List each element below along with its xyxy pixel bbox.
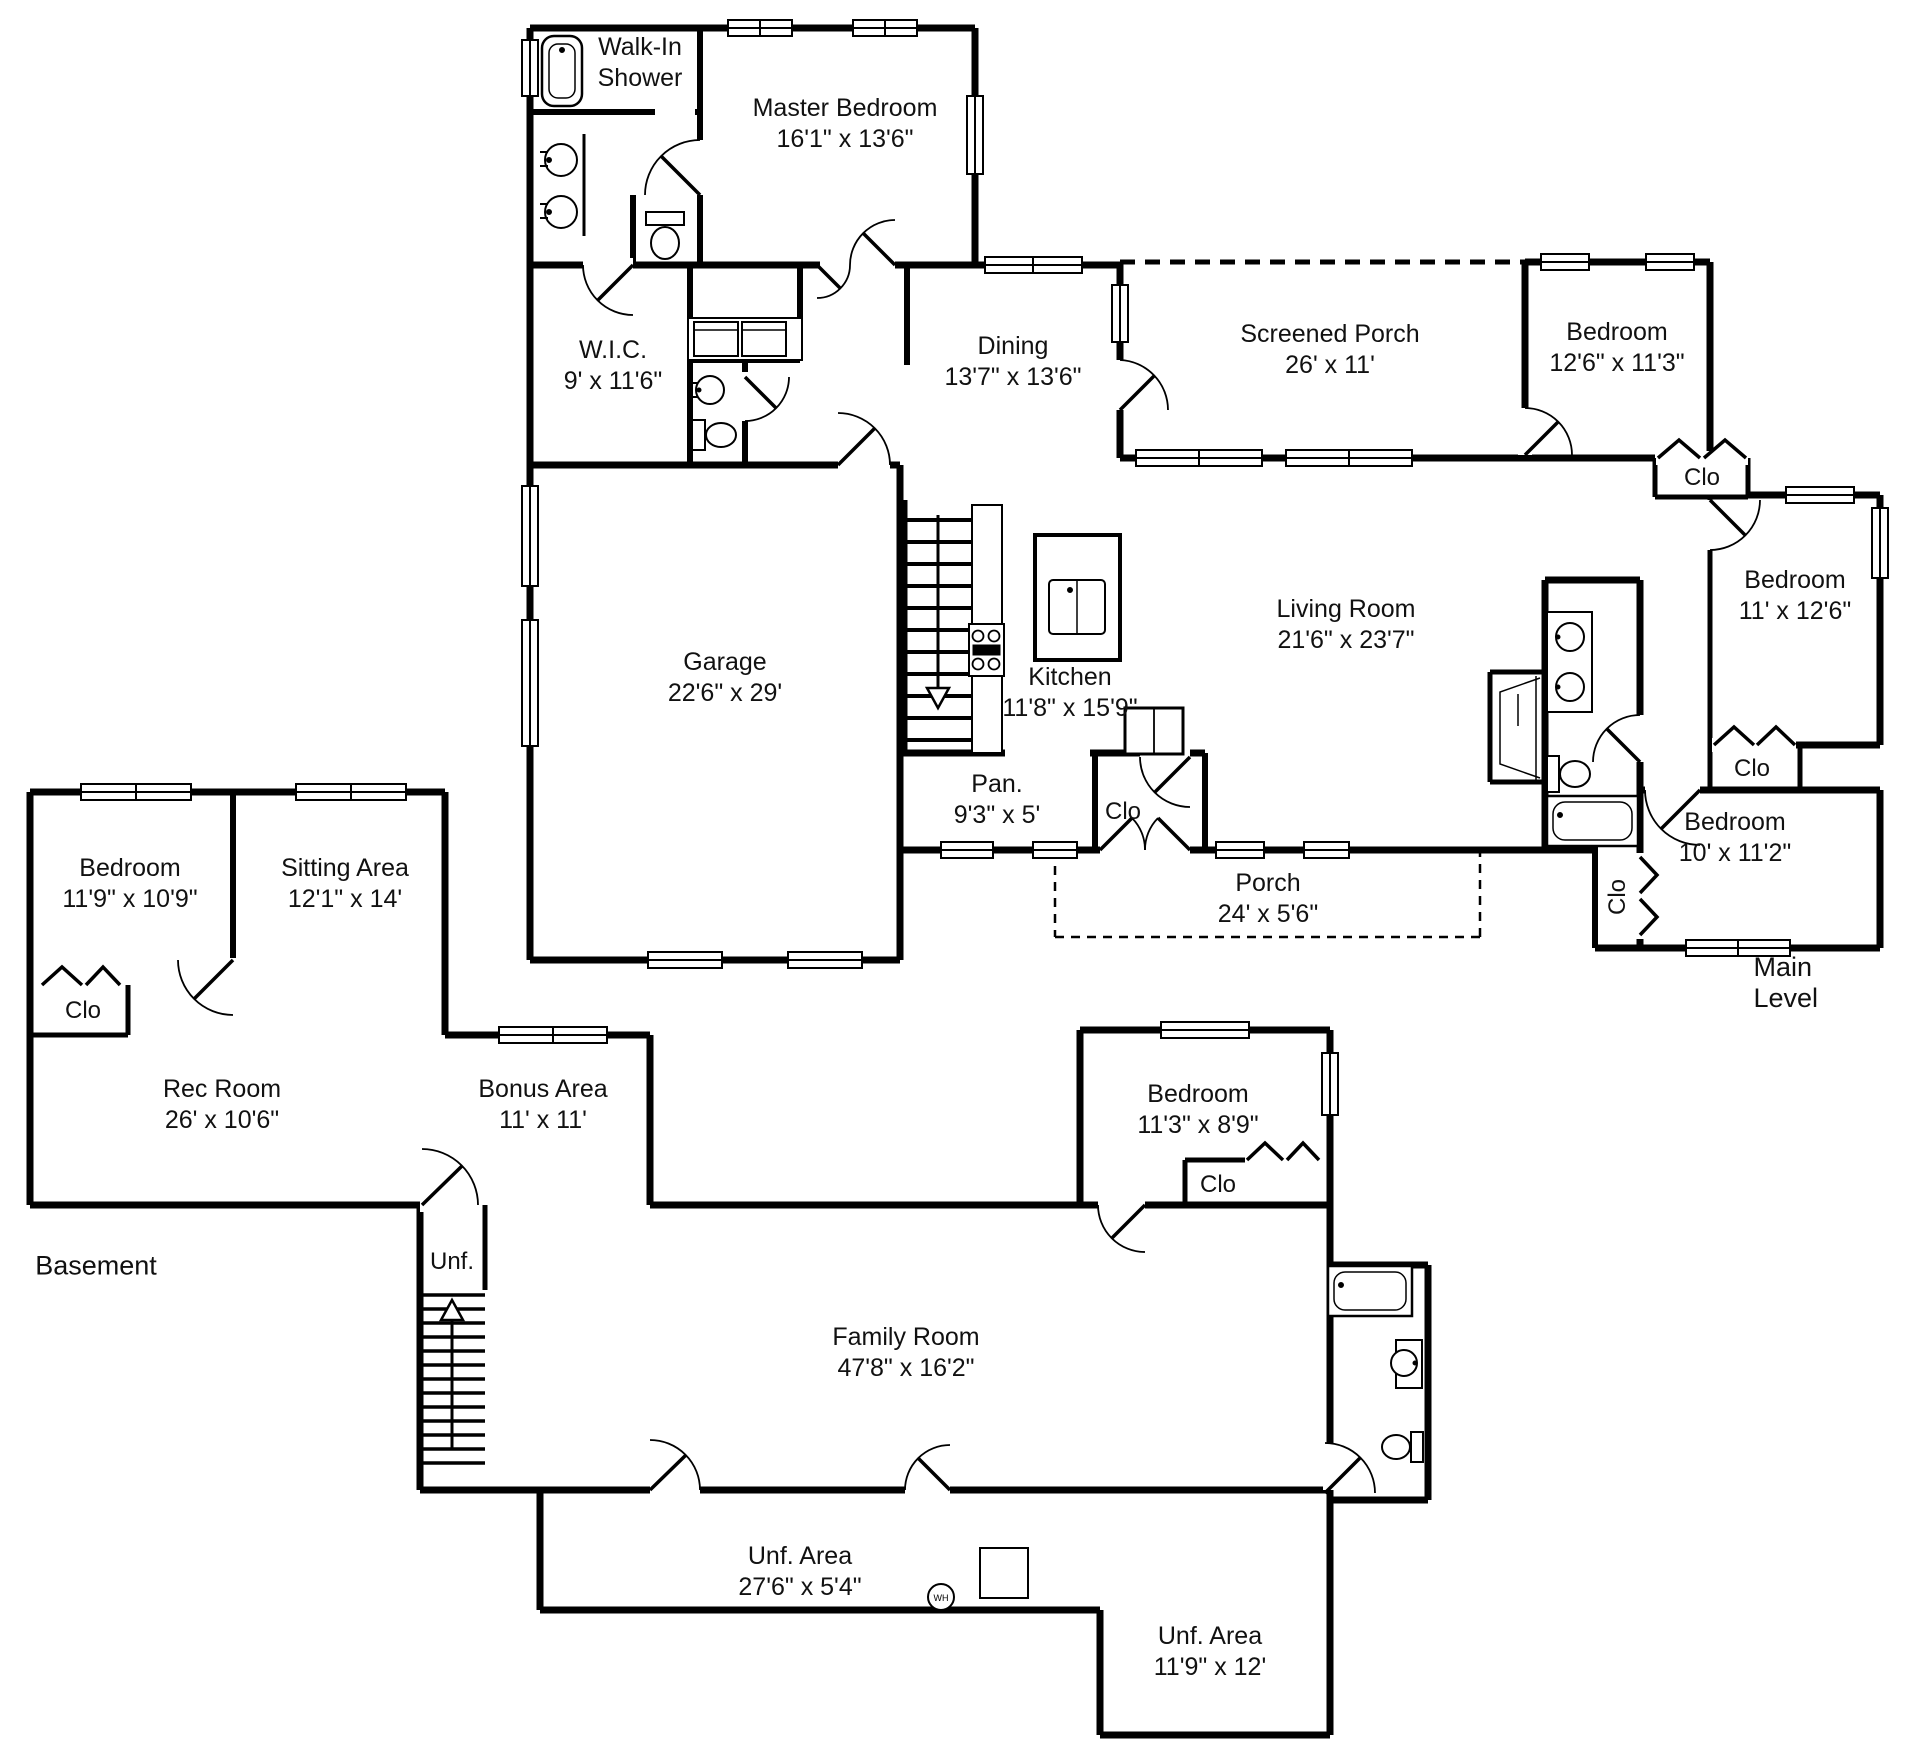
window-icon: [1286, 450, 1412, 466]
shower-stall-icon: [1500, 676, 1540, 780]
window-icon: [81, 784, 191, 800]
kitchen-island: [1035, 535, 1120, 660]
room-label-family-room: Family Room47'8" x 16'2": [832, 1322, 979, 1384]
fixtures: WH: [540, 36, 1638, 1610]
double-sink-icon: [1547, 612, 1592, 712]
room-label-bedroom-se: Bedroom10' x 11'2": [1679, 807, 1791, 869]
room-label-master-bedroom: Master Bedroom16'1" x 13'6": [753, 93, 938, 155]
room-label-basement-bedroom-nw: Bedroom11'9" x 10'9": [62, 853, 197, 915]
window-icon: [967, 96, 983, 174]
closet-label-bath: Clo: [1604, 879, 1632, 915]
room-label-bedroom-e: Bedroom11' x 12'6": [1739, 565, 1851, 627]
room-label-wic: W.I.C.9' x 11'6": [564, 335, 663, 397]
closet-label-kitchen: Clo: [1105, 798, 1141, 826]
sink-icon: [1391, 1340, 1422, 1388]
water-heater-icon: WH: [928, 1584, 954, 1610]
bathtub-icon: [1547, 796, 1638, 846]
window-icon: [296, 784, 406, 800]
closet-label-basement-nw: Clo: [65, 997, 101, 1025]
room-label-bedroom-ne: Bedroom12'6" x 11'3": [1549, 317, 1684, 379]
window-icon: [728, 20, 792, 36]
room-label-garage: Garage22'6" x 29': [668, 647, 782, 709]
window-icon: [1136, 450, 1262, 466]
room-label-unf-area-strip: Unf. Area27'6" x 5'4": [738, 1541, 861, 1603]
window-icon: [499, 1027, 607, 1043]
room-label-living-room: Living Room21'6" x 23'7": [1277, 594, 1416, 656]
closet-label-ne: Clo: [1684, 464, 1720, 492]
room-label-bonus-area: Bonus Area11' x 11': [478, 1074, 607, 1136]
window-icon: [1541, 254, 1589, 270]
room-label-kitchen: Kitchen11'8" x 15'9": [1002, 662, 1137, 724]
window-icon: [1112, 285, 1128, 342]
room-label-screened-porch: Screened Porch26' x 11': [1240, 319, 1419, 381]
room-label-rec-room: Rec Room26' x 10'6": [163, 1074, 281, 1136]
window-icon: [648, 952, 722, 968]
double-sink-icon: [540, 134, 584, 236]
sink-icon: [691, 376, 724, 404]
closet-label-basement-e: Clo: [1200, 1171, 1236, 1199]
room-label-unf-area-se: Unf. Area11'9" x 12': [1154, 1621, 1266, 1683]
furnace-icon: [980, 1548, 1028, 1598]
main-stairs: [905, 515, 972, 740]
window-icon: [1872, 508, 1888, 578]
window-icon: [1786, 487, 1854, 503]
main-level-label: Main Level: [1754, 952, 1867, 1014]
toilet-icon: [692, 420, 736, 450]
window-icon: [985, 257, 1082, 273]
stove-icon: [969, 624, 1004, 676]
window-icon: [1322, 1053, 1338, 1115]
toilet-icon: [1547, 756, 1590, 792]
closet-label-e: Clo: [1734, 755, 1770, 783]
window-icon: [1304, 842, 1349, 858]
toilet-icon: [1382, 1432, 1423, 1462]
basement-level-label: Basement: [35, 1251, 157, 1282]
window-icon: [1033, 842, 1077, 858]
window-icon: [522, 40, 538, 96]
window-icon: [1161, 1022, 1249, 1038]
room-label-basement-bedroom-e: Bedroom11'3" x 8'9": [1137, 1079, 1258, 1141]
washer-dryer-icon: [688, 318, 802, 360]
room-label-dining: Dining13'7" x 13'6": [944, 331, 1081, 393]
room-label-porch: Porch24' x 5'6": [1218, 868, 1318, 930]
svg-text:WH: WH: [934, 1593, 949, 1603]
bathtub-icon: [1328, 1266, 1412, 1316]
window-icon: [853, 20, 917, 36]
room-label-sitting-area: Sitting Area12'1" x 14': [281, 853, 409, 915]
room-label-unf-stairs: Unf.: [430, 1248, 474, 1276]
room-label-walk-in-shower: Walk-In Shower: [575, 32, 705, 94]
window-icon: [522, 620, 538, 746]
basement-stairs: [420, 1295, 485, 1463]
toilet-icon: [646, 212, 684, 259]
window-icon: [522, 486, 538, 586]
window-icon: [941, 842, 993, 858]
room-label-pantry: Pan.9'3" x 5': [954, 769, 1041, 831]
window-icon: [788, 952, 862, 968]
window-icon: [1216, 842, 1264, 858]
window-icon: [1646, 254, 1694, 270]
floor-plan: WH Walk-In Shower Master Bedroom16'1" x …: [0, 0, 1923, 1744]
